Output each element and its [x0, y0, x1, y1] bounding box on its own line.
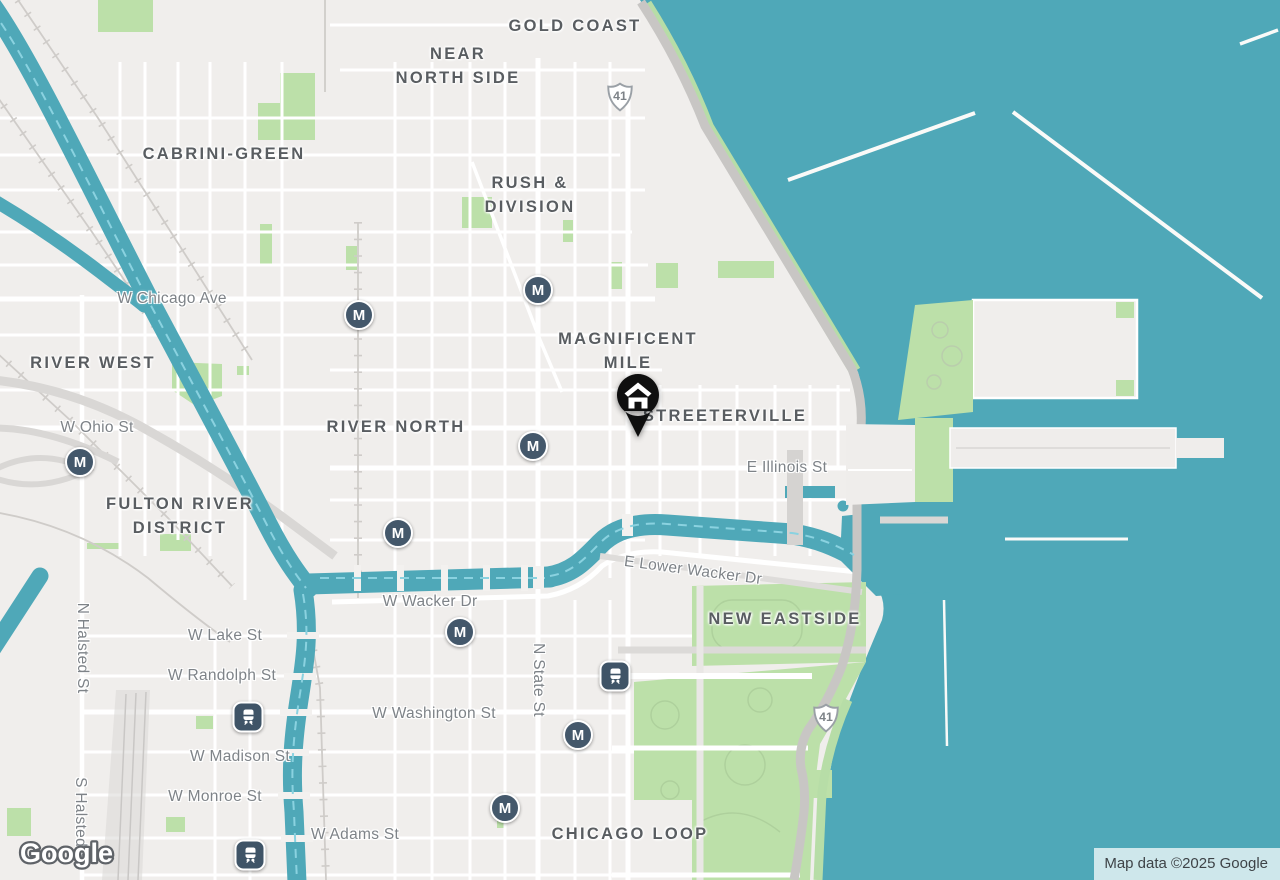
neighborhood-label-cabrini-green[interactable]: CABRINI-GREEN — [143, 143, 306, 167]
metro-station-marker[interactable]: M — [563, 720, 593, 750]
street-label-w-ohio-st: W Ohio St — [60, 419, 133, 437]
metro-letter: M — [74, 454, 87, 471]
neighborhood-label-river-north[interactable]: RIVER NORTH — [327, 416, 466, 440]
metro-letter: M — [353, 307, 366, 324]
metro-station-marker[interactable]: M — [383, 518, 413, 548]
street-label-w-washington-st: W Washington St — [372, 705, 496, 723]
metro-letter: M — [454, 624, 467, 641]
street-label-w-adams-st: W Adams St — [311, 826, 399, 844]
street-label-n-state-st: N State St — [529, 643, 547, 717]
street-label-w-chicago-ave: W Chicago Ave — [117, 290, 227, 308]
home-icon — [617, 374, 659, 437]
metro-station-marker[interactable]: M — [344, 300, 374, 330]
street-label-w-monroe-st: W Monroe St — [168, 788, 262, 806]
metro-letter: M — [527, 438, 540, 455]
neighborhood-label-near-north-side[interactable]: NEAR NORTH SIDE — [396, 43, 521, 91]
street-label-n-halsted-st: N Halsted St — [73, 603, 91, 694]
google-logo-text: Google — [20, 838, 113, 868]
street-label-e-illinois-st: E Illinois St — [747, 459, 828, 477]
map-canvas[interactable]: GOLD COAST NEAR NORTH SIDE CABRINI-GREEN… — [0, 0, 1280, 880]
metro-station-marker[interactable]: M — [490, 793, 520, 823]
neighborhood-label-gold-coast[interactable]: GOLD COAST — [509, 15, 642, 39]
us-41-shield-south: 41 — [811, 702, 841, 734]
us-41-shield-north-label: 41 — [613, 89, 627, 103]
train-icon — [240, 709, 256, 726]
street-label-w-lake-st: W Lake St — [188, 627, 262, 645]
neighborhood-label-new-eastside[interactable]: NEW EASTSIDE — [708, 608, 861, 632]
train-icon — [242, 847, 258, 864]
neighborhood-label-streeterville[interactable]: STREETERVILLE — [643, 405, 807, 429]
lodging-pin-marker[interactable] — [614, 371, 662, 441]
neighborhood-label-river-west[interactable]: RIVER WEST — [30, 352, 156, 376]
map-attribution: Map data ©2025 Google — [1094, 848, 1280, 880]
metro-letter: M — [572, 727, 585, 744]
train-station-marker[interactable] — [233, 702, 264, 733]
metro-letter: M — [392, 525, 405, 542]
train-station-marker[interactable] — [235, 840, 266, 871]
neighborhood-label-magnificent-mile[interactable]: MAGNIFICENT MILE — [558, 328, 698, 376]
train-icon — [607, 668, 623, 685]
google-logo[interactable]: Google — [16, 832, 126, 874]
neighborhood-label-fulton-river-district[interactable]: FULTON RIVER DISTRICT — [106, 493, 254, 541]
us-41-shield-north: 41 — [605, 81, 635, 113]
neighborhood-label-chicago-loop[interactable]: CHICAGO LOOP — [552, 823, 709, 847]
us-41-shield-south-label: 41 — [819, 710, 833, 724]
metro-station-marker[interactable]: M — [523, 275, 553, 305]
street-label-w-randolph-st: W Randolph St — [168, 667, 276, 685]
metro-station-marker[interactable]: M — [445, 617, 475, 647]
metro-station-marker[interactable]: M — [65, 447, 95, 477]
street-label-w-wacker-dr: W Wacker Dr — [383, 593, 478, 611]
metro-letter: M — [499, 800, 512, 817]
metro-station-marker[interactable]: M — [518, 431, 548, 461]
neighborhood-label-rush-division[interactable]: RUSH & DIVISION — [485, 172, 576, 220]
train-station-marker[interactable] — [600, 661, 631, 692]
metro-letter: M — [532, 282, 545, 299]
street-label-w-madison-st: W Madison St — [190, 748, 290, 766]
